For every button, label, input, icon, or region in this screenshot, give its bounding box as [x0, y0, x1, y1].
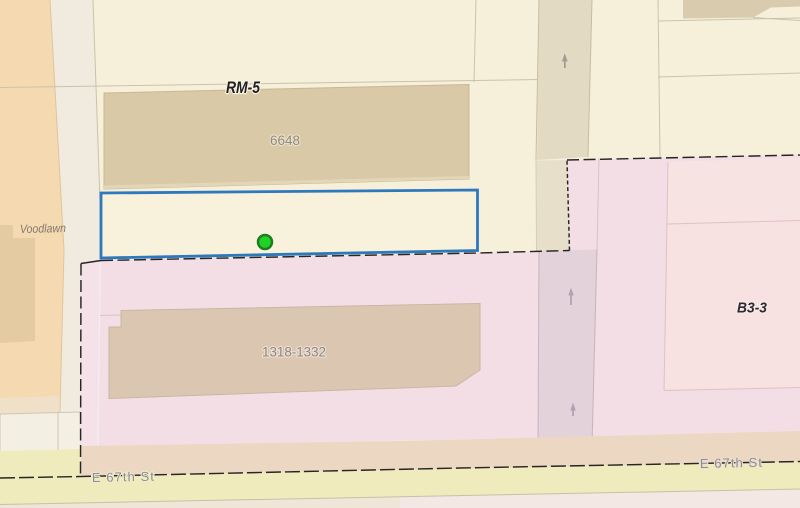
svg-text:B3-3: B3-3 [737, 301, 767, 317]
svg-text:1318-1332: 1318-1332 [262, 344, 326, 360]
svg-text:E 67th St: E 67th St [92, 469, 155, 485]
svg-text:Voodlawn: Voodlawn [20, 221, 67, 236]
svg-text:RM-5: RM-5 [226, 79, 261, 97]
svg-text:E 67th St: E 67th St [700, 455, 763, 471]
svg-text:6648: 6648 [270, 132, 300, 148]
